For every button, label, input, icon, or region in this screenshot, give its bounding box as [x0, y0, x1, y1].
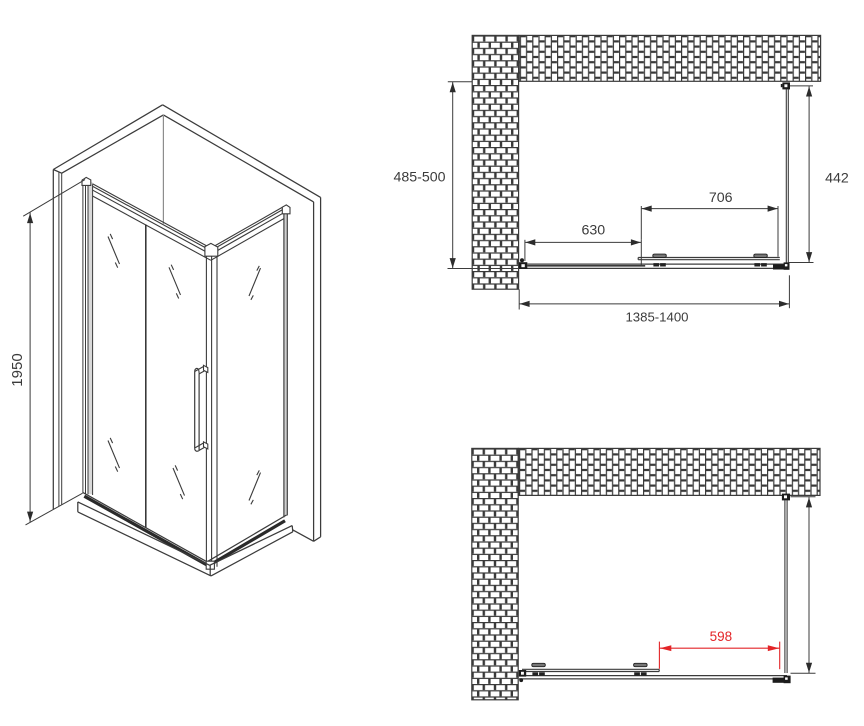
svg-text:1385-1400: 1385-1400 — [625, 309, 688, 324]
svg-text:442: 442 — [825, 170, 849, 186]
svg-text:598: 598 — [710, 629, 733, 644]
svg-text:630: 630 — [581, 222, 605, 238]
svg-text:485-500: 485-500 — [393, 170, 445, 186]
svg-text:1950: 1950 — [9, 353, 26, 386]
svg-text:706: 706 — [709, 190, 733, 206]
